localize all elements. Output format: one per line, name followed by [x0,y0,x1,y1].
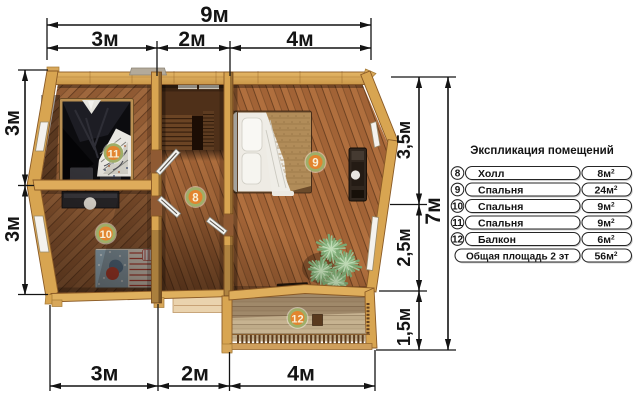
svg-text:7м: 7м [422,197,445,224]
svg-text:9м: 9м [200,2,229,27]
svg-text:Общая площадь 2 эт: Общая площадь 2 эт [466,251,569,263]
svg-text:10: 10 [100,229,112,241]
svg-text:3м: 3м [2,110,24,136]
svg-text:4м: 4м [287,362,315,386]
svg-text:8: 8 [455,169,461,180]
svg-text:Балкон: Балкон [478,234,516,246]
svg-text:3м: 3м [2,216,24,242]
svg-text:9: 9 [455,185,461,196]
svg-text:12: 12 [452,235,464,246]
svg-text:Экспликация помещений: Экспликация помещений [470,145,614,157]
svg-text:Спальня: Спальня [478,218,523,230]
svg-text:2м: 2м [181,362,209,386]
svg-text:2м: 2м [178,28,205,51]
svg-text:3м: 3м [91,362,119,386]
svg-text:3м: 3м [91,28,118,51]
svg-text:Спальня: Спальня [478,201,523,213]
svg-text:Холл: Холл [478,168,504,180]
svg-text:9: 9 [312,157,318,169]
svg-text:2,5м: 2,5м [394,228,414,266]
svg-text:3,5м: 3,5м [394,121,414,159]
svg-text:10: 10 [452,202,464,213]
svg-text:4м: 4м [286,28,313,51]
svg-text:Спальня: Спальня [478,185,523,197]
svg-text:8: 8 [192,192,199,204]
svg-text:11: 11 [108,148,120,160]
svg-text:1,5м: 1,5м [394,308,414,346]
svg-text:11: 11 [452,218,463,229]
svg-text:12: 12 [291,313,303,325]
